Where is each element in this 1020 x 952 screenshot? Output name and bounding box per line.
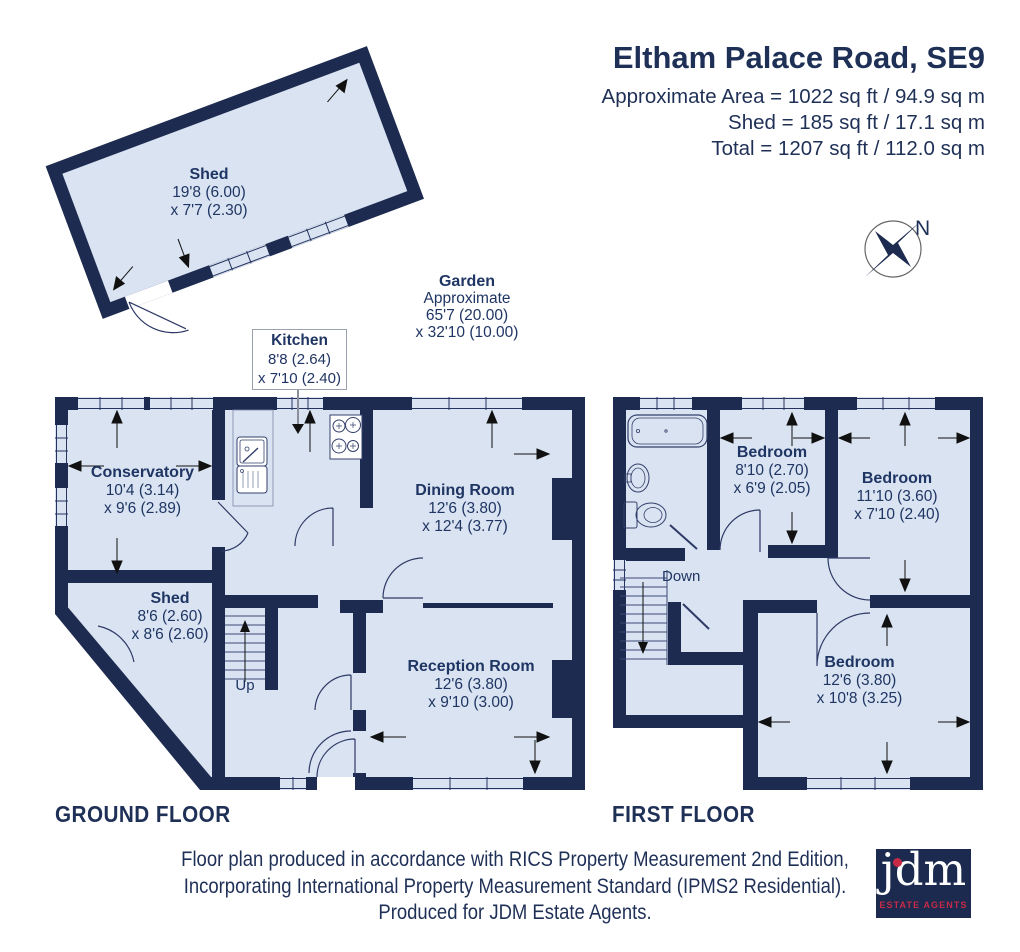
area-line-shed: Shed = 185 sq ft / 17.1 sq m [602,110,985,136]
room-label-bedroom-back: Bedroom 12'6 (3.80) x 10'8 (3.25) [782,654,937,708]
page-title: Eltham Palace Road, SE9 [613,40,985,76]
jdm-logo-red-dot [893,858,902,867]
area-summary: Approximate Area = 1022 sq ft / 94.9 sq … [602,84,985,162]
floorplan-page: Eltham Palace Road, SE9 Approximate Area… [0,0,1020,952]
room-label-reception-room: Reception Room 12'6 (3.80) x 9'10 (3.00) [382,658,560,712]
jdm-logo-brand: jdm [876,843,971,896]
kitchen-callout-box: Kitchen 8'8 (2.64) x 7'10 (2.40) [252,329,347,390]
footer-line-1: Floor plan produced in accordance with R… [145,847,884,874]
kitchen-stove [330,415,362,459]
room-label-dining-room: Dining Room 12'6 (3.80) x 12'4 (3.77) [380,482,550,536]
jdm-logo: jdm ESTATE AGENTS [876,849,971,918]
room-label-bedroom-right: Bedroom 11'10 (3.60) x 7'10 (2.40) [822,470,972,524]
stairs-up-label: Up [225,677,265,695]
kitchen-leader-arrow [292,424,304,434]
compass-north-label: N [915,217,930,241]
footer-line-2: Incorporating International Property Mea… [145,874,884,901]
kitchen-leader-line [297,390,299,424]
area-line-total-approx: Approximate Area = 1022 sq ft / 94.9 sq … [602,84,985,110]
jdm-logo-tagline: ESTATE AGENTS [876,900,971,910]
room-label-conservatory: Conservatory 10'4 (3.14) x 9'6 (2.89) [60,464,225,518]
room-label-bedroom-front: Bedroom 8'10 (2.70) x 6'9 (2.05) [702,444,842,498]
area-line-total: Total = 1207 sq ft / 112.0 sq m [602,136,985,162]
first-floor-title: FIRST FLOOR [612,801,755,828]
front-door-opening [317,777,355,790]
room-label-ground-shed: Shed 8'6 (2.60) x 8'6 (2.60) [100,590,240,644]
stairs-down-label: Down [662,568,722,586]
footer-disclaimer: Floor plan produced in accordance with R… [145,847,884,927]
garden-label: Garden Approximate 65'7 (20.00) x 32'10 … [382,273,552,341]
room-label-outbuilding-shed: Shed 19'8 (6.00) x 7'7 (2.30) [124,166,294,220]
ground-floor-title: GROUND FLOOR [55,801,231,828]
footer-line-3: Produced for JDM Estate Agents. [145,900,884,927]
